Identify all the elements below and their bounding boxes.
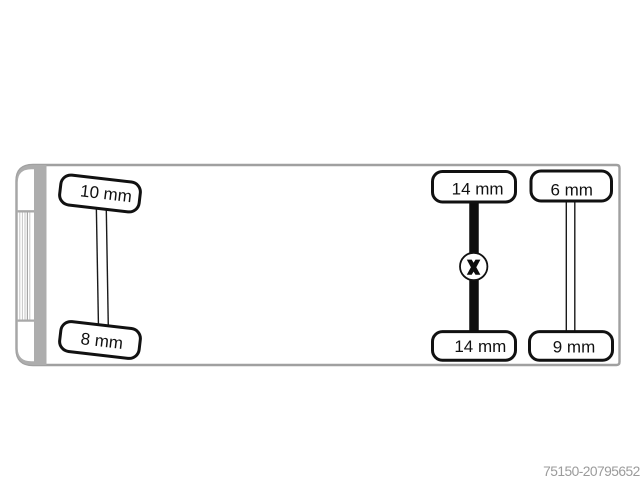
svg-text:14 mm: 14 mm	[452, 179, 504, 198]
svg-text:6 mm: 6 mm	[550, 181, 593, 200]
svg-text:75150-20795652: 75150-20795652	[543, 464, 640, 479]
svg-text:9 mm: 9 mm	[553, 337, 596, 356]
svg-text:14 mm: 14 mm	[454, 337, 506, 356]
